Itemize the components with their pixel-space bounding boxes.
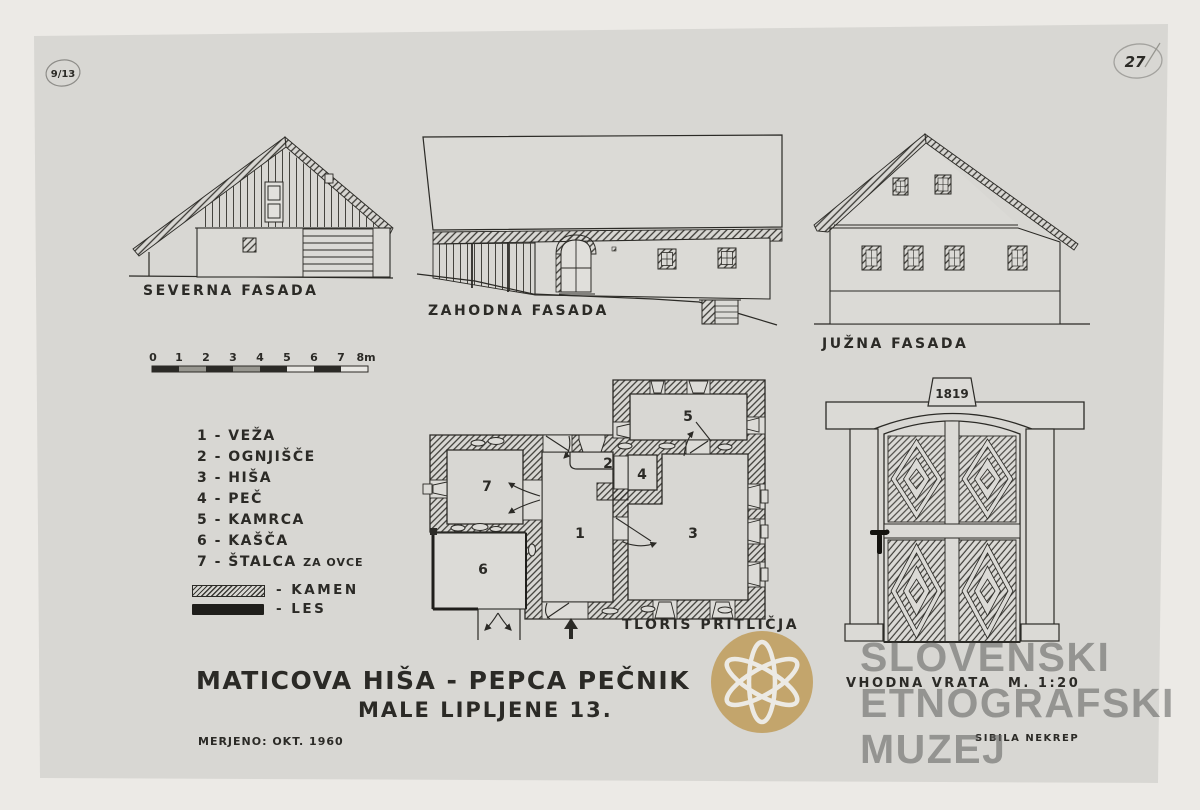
- sheet-subtitle: MALE LIPLJENE 13.: [358, 698, 613, 722]
- wood-label: - LES: [276, 601, 326, 617]
- room-number-2: 2: [603, 456, 613, 472]
- scale-tick: 1: [175, 351, 183, 364]
- legend-item: 7 - ŠTALCA ZA OVCE: [197, 554, 364, 575]
- legend-item-suffix: ZA OVCE: [303, 556, 363, 569]
- legend-item: 3 - HIŠA: [197, 470, 364, 491]
- room-number-5: 5: [683, 409, 693, 425]
- north-facade-label: SEVERNA FASADA: [143, 283, 318, 299]
- legend-item-text: 7 - ŠTALCA: [197, 554, 297, 570]
- scale-tick: 2: [202, 351, 210, 364]
- measured-date: MERJENO: OKT. 1960: [198, 735, 344, 748]
- scale-bar: 0 1 2 3 4 5 6 7 8m: [148, 350, 380, 380]
- cellar-door: [699, 300, 741, 324]
- room-legend: 1 - VEŽA 2 - OGNJIŠČE 3 - HIŠA 4 - PEČ 5…: [197, 428, 364, 575]
- wall: [830, 228, 1060, 324]
- south-facade-label: JUŽNA FASADA: [822, 336, 968, 352]
- barn-planks: [433, 242, 535, 295]
- legend-item: 2 - OGNJIŠČE: [197, 449, 364, 470]
- scale-tick: 0: [149, 351, 157, 364]
- entrance-arrow: [564, 618, 578, 639]
- sheet-title: MATICOVA HIŠA - PEPCA PEČNIK: [196, 666, 690, 695]
- legend-item: 1 - VEŽA: [197, 428, 364, 449]
- porch-column: [579, 435, 605, 452]
- roof: [423, 135, 782, 230]
- scale-tick: 5: [283, 351, 291, 364]
- wood-swatch: [192, 604, 264, 615]
- stone-hatch-swatch: [192, 585, 265, 597]
- room-number-1: 1: [575, 526, 585, 542]
- room-number-6: 6: [478, 562, 488, 578]
- keystone-year: 1819: [935, 387, 968, 401]
- stone-label: - KAMEN: [276, 582, 359, 598]
- entrance-portal: [556, 235, 596, 294]
- pencil-mark-top-right: 27: [1110, 38, 1168, 84]
- room-number-3: 3: [688, 526, 698, 542]
- page-number-large: 27: [1125, 53, 1146, 71]
- page-number-small: 9/13: [51, 69, 76, 80]
- room-number-7: 7: [482, 479, 492, 495]
- watermark-line3: MUZEJ: [860, 726, 1006, 773]
- entrance-door-drawing: 1819: [822, 372, 1090, 657]
- scale-tick: 3: [229, 351, 237, 364]
- gable-window: [893, 178, 908, 195]
- gable-window: [265, 182, 283, 222]
- west-facade-label: ZAHODNA FASADA: [428, 303, 609, 319]
- south-facade-drawing: [812, 128, 1100, 363]
- legend-item: 4 - PEČ: [197, 491, 364, 512]
- gable-window: [935, 175, 951, 194]
- scanned-drawing-sheet: 9/13 27: [0, 0, 1200, 810]
- scale-tick: 7: [337, 351, 345, 364]
- mid-rail: [884, 524, 1020, 538]
- scale-tick: 6: [310, 351, 318, 364]
- museum-logo-icon: [710, 630, 814, 734]
- watermark-line1: SLOVENSKI: [860, 634, 1110, 681]
- window: [658, 249, 676, 269]
- legend-item: 5 - KAMRCA: [197, 512, 364, 533]
- north-facade-drawing: [125, 130, 400, 305]
- wood-room: [430, 528, 526, 640]
- room-number-4: 4: [637, 467, 647, 483]
- floor-plan-drawing: 1 2 3 4 5 6 7: [420, 372, 780, 644]
- vent: [612, 247, 616, 251]
- small-window: [243, 238, 256, 252]
- scale-tick: 8m: [356, 351, 375, 364]
- watermark-line2: ETNOGRAFSKI: [860, 680, 1175, 727]
- legend-item: 6 - KAŠČA: [197, 533, 364, 554]
- plank-door-section: [303, 229, 373, 277]
- pencil-mark-top-left: 9/13: [42, 56, 86, 92]
- window: [718, 248, 736, 268]
- scale-tick: 4: [256, 351, 264, 364]
